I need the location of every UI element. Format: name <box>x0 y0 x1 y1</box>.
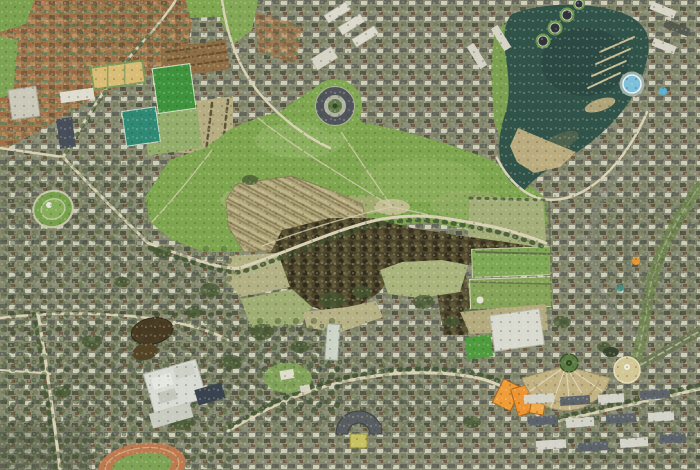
satellite-canvas <box>0 0 700 470</box>
noise-overlay <box>0 0 700 470</box>
satellite-map-view[interactable] <box>0 0 700 470</box>
terrain-feature-layer <box>0 0 700 470</box>
